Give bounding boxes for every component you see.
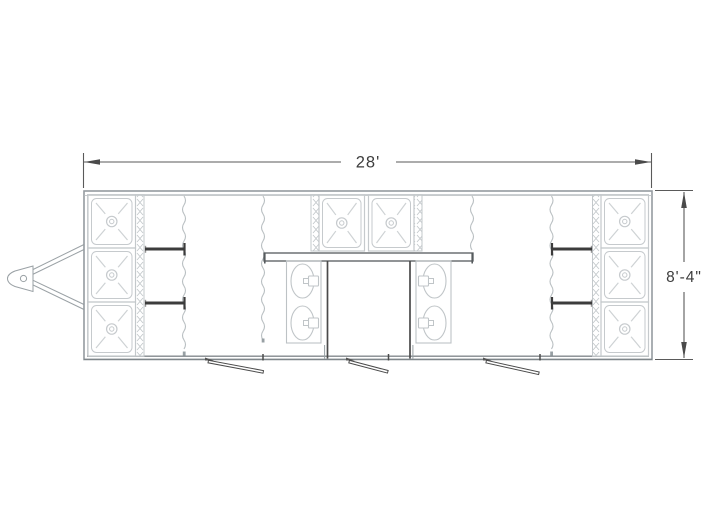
shower-stall [601,302,649,356]
corridor-wall [325,261,413,359]
shower-stall [319,195,365,251]
shower-stall [88,302,136,356]
arrowhead-down-icon [681,342,687,358]
shower-curtain [183,196,554,349]
height-dimension-label: 8'-4" [666,269,702,286]
arrowhead-left-icon [84,159,100,165]
shower-stall [88,195,136,248]
width-dimension-label: 28' [356,154,381,172]
sink [291,264,319,298]
shower-stall [369,195,415,251]
sink [291,306,319,340]
sink [419,306,447,340]
shower-stall [601,195,649,248]
curtain-end-mark [183,339,553,356]
arrowhead-right-icon [635,159,651,165]
sink [419,264,447,298]
shower-stall [601,248,649,302]
hitch-tongue [8,245,85,310]
shower-stall [88,248,136,302]
arrowhead-up-icon [681,192,687,208]
sink-counter [264,253,473,264]
floorplan-canvas: 28' 8'-4" [0,0,710,530]
